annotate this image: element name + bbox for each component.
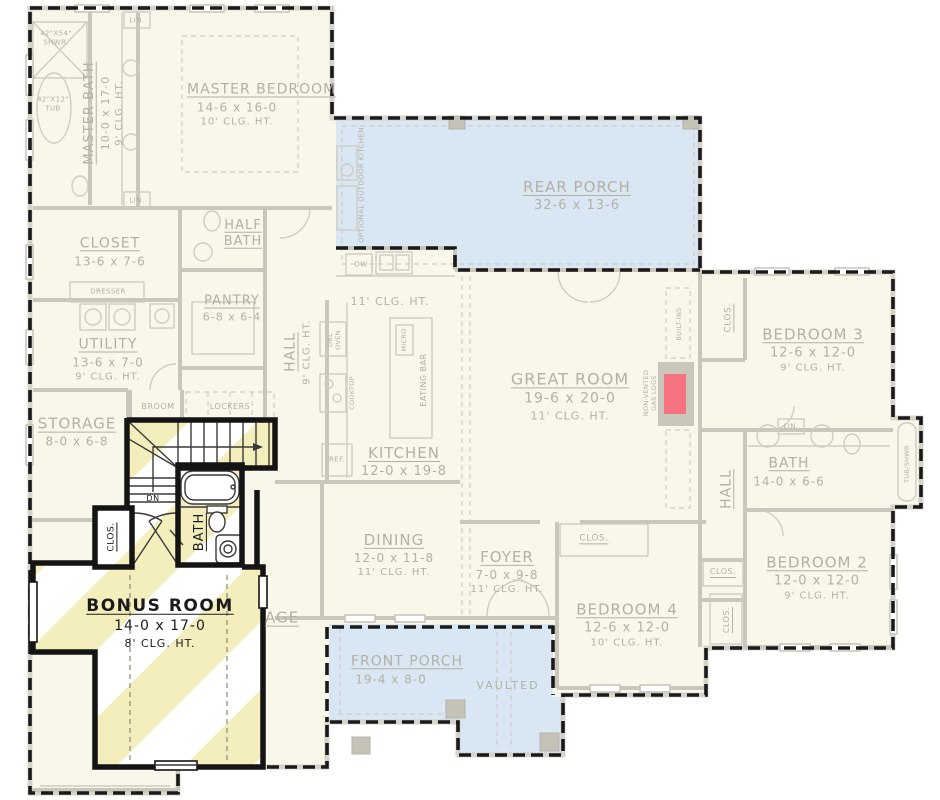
room-label-bedroom4: BEDROOM 4 12-6 x 12-0 10' CLG. HT.: [576, 600, 678, 650]
room-label-great-room: GREAT ROOM 19-6 x 20-0 11' CLG. HT.: [511, 369, 629, 422]
room-label-half-bath: HALF BATH: [217, 218, 269, 251]
micro-label: MICRO: [400, 328, 408, 351]
room-label-hall-left: HALL 9' CLG. HT.: [283, 319, 314, 385]
room-label-rear-porch: REAR PORCH 32-6 x 13-6: [523, 178, 631, 214]
broom-label: BROOM: [141, 402, 174, 412]
floor-plan-drawing: [0, 0, 940, 800]
built-ins-label: BUILT-INS: [675, 307, 683, 340]
linen-label-bath: LIN.: [783, 423, 798, 432]
room-label-bonus-bath: BATH: [192, 513, 208, 552]
closet-label-bedroom2a: CLOS.: [710, 567, 736, 577]
tub-label: 42"X12" TUB: [30, 95, 76, 113]
room-label-master-bath: MASTER BATH 10-0 x 17-0 9' CLG. HT.: [82, 61, 127, 164]
room-label-closet: CLOSET 13-6 x 7-6: [74, 235, 146, 269]
linen-label-2: LIN.: [129, 197, 144, 206]
garage-label-partial: AGE: [265, 609, 299, 628]
linen-label-1: LIN.: [129, 17, 144, 26]
refrigerator-label: REF.: [329, 456, 345, 465]
room-label-front-porch: FRONT PORCH 19-4 x 8-0: [351, 653, 431, 687]
vaulted-label: VAULTED: [476, 679, 539, 693]
closet-label-bedroom2b: CLOS.: [722, 607, 732, 633]
room-label-dining: DINING 12-0 x 11-8 11' CLG. HT.: [354, 531, 434, 579]
room-label-hall-right: HALL: [718, 469, 736, 509]
room-label-bonus-room: BONUS ROOM 14-0 x 17-0 8' CLG. HT.: [86, 596, 234, 651]
gas-logs-label: NON-VENTED GAS LOGS: [642, 365, 658, 421]
lockers-label: LOCKERS: [210, 402, 251, 412]
floor-plan: MASTER BATH 10-0 x 17-0 9' CLG. HT. 42"X…: [0, 0, 940, 800]
stairs-dn-label: DN: [146, 494, 159, 504]
room-label-pantry: PANTRY 6-8 x 6-4: [203, 294, 261, 325]
shower-label: 42"X54" SHWR.: [29, 29, 83, 47]
dbl-oven-label: DBL OVEN: [326, 323, 342, 357]
room-label-foyer: FOYER 7-0 x 9-8 11' CLG. HT.: [471, 548, 544, 596]
fireplace-gas-logs: [664, 374, 686, 414]
cooktop-label: COOKTOP: [348, 376, 356, 410]
dishwasher-label: DW: [354, 261, 367, 270]
room-label-kitchen: KITCHEN 12-0 x 19-8: [361, 444, 447, 480]
room-label-utility: UTILITY 13-6 x 7-0 9' CLG. HT.: [72, 337, 144, 384]
room-label-bedroom3: BEDROOM 3 12-6 x 12-0 9' CLG. HT.: [762, 325, 864, 375]
closet-label-bonus: CLOS.: [106, 522, 117, 551]
closet-label-bedroom3: CLOS.: [723, 303, 734, 332]
optional-outdoor-kitchen-label: OPTIONAL OUTDOOR KITCHEN: [358, 127, 367, 243]
tub-shwr-label: TUB/SHWR: [903, 445, 911, 483]
room-label-master-bedroom: MASTER BEDROOM 14-6 x 16-0 10' CLG. HT.: [187, 82, 287, 129]
kitchen-ceiling-label: 11' CLG. HT.: [350, 295, 429, 309]
room-label-storage: STORAGE 8-0 x 6-8: [38, 415, 116, 450]
eating-bar-label: EATING BAR: [419, 353, 429, 406]
room-label-bath-main: BATH 14-0 x 6-6: [753, 455, 825, 489]
room-label-bedroom2: BEDROOM 2 12-0 x 12-0 9' CLG. HT.: [766, 553, 868, 603]
dresser-label: DRESSER: [90, 288, 126, 297]
closet-label-bedroom4: CLOS.: [579, 533, 608, 544]
